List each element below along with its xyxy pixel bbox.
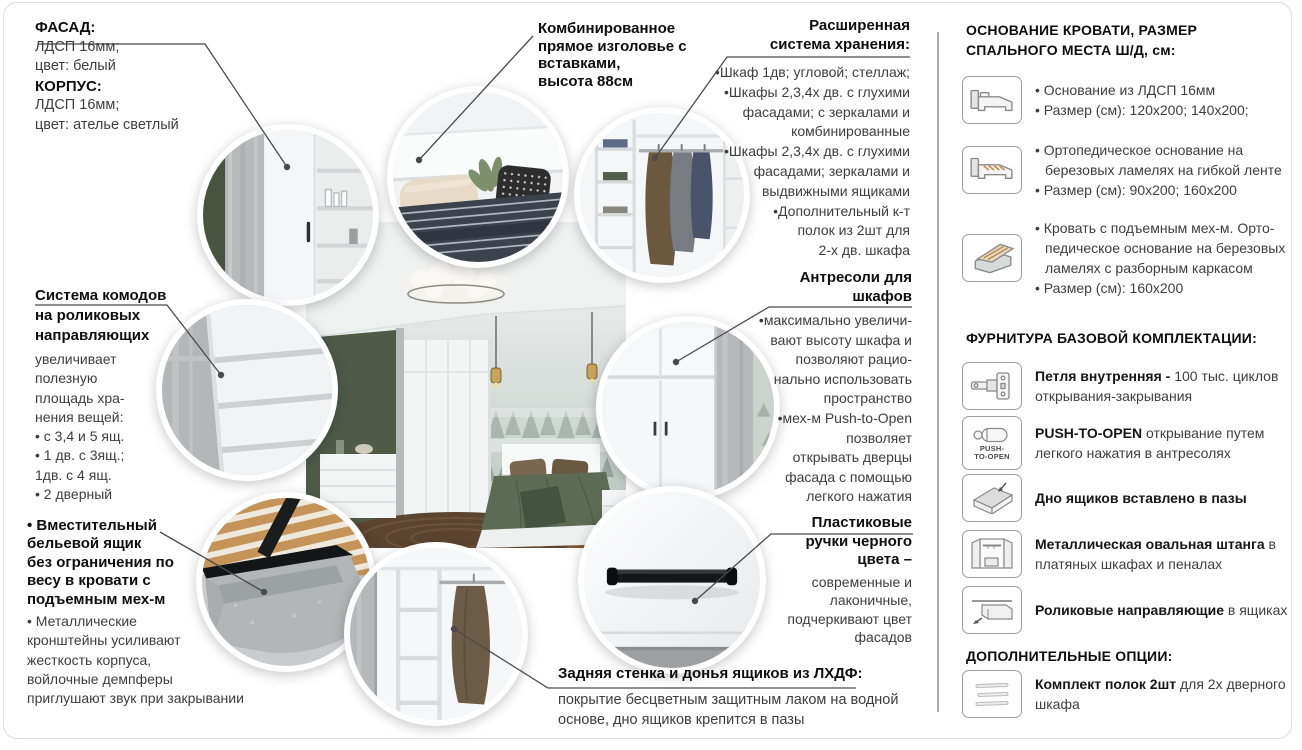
bed-item-ortho: • Ортопедическое основание на березовых … — [962, 140, 1291, 200]
hinge-icon — [970, 369, 1014, 403]
infographic-page: ФАСАД: ЛДСП 16мм; цвет: белый КОРПУС: ЛД… — [0, 0, 1302, 750]
callout-drawer-system: Система комодовна роликовыхнаправляющих … — [35, 286, 205, 504]
body-line: цвет: ателье светлый — [35, 116, 225, 136]
callout-mezzanine: Антресоли дляшкафов •максимально увеличи… — [640, 268, 912, 507]
linen-box-text: • Металлическиекронштейны усиливаютжестк… — [27, 612, 287, 708]
hardware-item-push: PUSH-TO-OPEN PUSH-TO-OPEN открывание пут… — [962, 416, 1291, 470]
bed-base-text: • Основание из ЛДСП 16мм • Размер (см): … — [1035, 80, 1291, 120]
shelf-kit-icon-box — [962, 670, 1022, 718]
back-wall-title: Задняя стенка и донья ящиков из ЛХДФ: — [558, 665, 928, 683]
facade-line: ЛДСП 16мм; — [35, 38, 225, 58]
bed-section-title: ОСНОВАНИЕ КРОВАТИ, РАЗМЕРСПАЛЬНОГО МЕСТА… — [966, 20, 1276, 60]
hinge-icon-box — [962, 362, 1022, 410]
callout-photo-headboard — [387, 86, 569, 268]
bed-base-icon-box — [962, 76, 1022, 124]
shelf-kit-text: Комплект полок 2шт для 2х дверного шкафа — [1035, 674, 1291, 714]
drawer-system-title: Система комодовна роликовыхнаправляющих — [35, 286, 205, 346]
callout-linen-box: • Вместительныйбельевой ящикбез ограниче… — [27, 517, 287, 709]
hardware-item-rollers: Роликовые направляющие в ящиках — [962, 586, 1291, 634]
bed-ortho-icon — [969, 154, 1015, 186]
storage-title: Расширеннаясистема хранения: — [620, 16, 910, 54]
callout-handles: Пластиковыеручки черногоцвета – современ… — [650, 514, 912, 647]
body-line: ЛДСП 16мм; — [35, 96, 225, 116]
callout-back-wall: Задняя стенка и донья ящиков из ЛХДФ: по… — [558, 665, 928, 730]
push-to-open-icon — [972, 425, 1012, 445]
linen-box-title: • Вместительныйбельевой ящикбез ограниче… — [27, 517, 287, 609]
wardrobe-rod-text: Металлическая овальная штанга в платяных… — [1035, 534, 1291, 574]
bed-lift-text: • Кровать с подъемным мех-м. Орто-педиче… — [1035, 218, 1291, 298]
bed-item-base: • Основание из ЛДСП 16мм • Размер (см): … — [962, 76, 1291, 124]
push-to-open-text: PUSH-TO-OPEN открывание путем легкого на… — [1035, 423, 1291, 463]
body-title: КОРПУС: — [35, 77, 225, 97]
bed-item-lift: • Кровать с подъемным мех-м. Орто-педиче… — [962, 218, 1291, 298]
mezzanine-list: •максимально увеличи-вают высоту шкафа и… — [640, 311, 912, 507]
mezzanine-title: Антресоли дляшкафов — [640, 268, 912, 306]
bed-lift-icon-box — [962, 234, 1022, 282]
back-wall-text: покрытие бесцветным защитным лаком на во… — [558, 691, 928, 730]
bed-ortho-icon-box — [962, 146, 1022, 194]
drawer-bottom-icon-box — [962, 474, 1022, 522]
callout-photo-wardrobe-facade — [197, 124, 379, 306]
facade-title: ФАСАД: — [35, 18, 225, 38]
options-item-shelves: Комплект полок 2шт для 2х дверного шкафа — [962, 670, 1291, 718]
wardrobe-rod-icon — [970, 537, 1014, 571]
storage-list: •Шкаф 1дв; угловой; стеллаж;•Шкафы 2,3,4… — [620, 63, 910, 261]
handles-text: современные илаконичные,подчеркивают цве… — [650, 573, 912, 647]
facade-line: цвет: белый — [35, 57, 225, 77]
handles-title: Пластиковыеручки черногоцвета – — [650, 514, 912, 570]
roller-guides-icon — [970, 595, 1014, 625]
drawer-system-list: увеличиваетполезнуюплощадь хра-нения вещ… — [35, 350, 205, 504]
hinge-text: Петля внутренняя - 100 тыс. циклов откры… — [1035, 366, 1291, 406]
wardrobe-rod-icon-box — [962, 530, 1022, 578]
hardware-item-hinge: Петля внутренняя - 100 тыс. циклов откры… — [962, 362, 1291, 410]
roller-guides-text: Роликовые направляющие в ящиках — [1035, 600, 1291, 620]
bed-lift-icon — [969, 241, 1015, 275]
push-to-open-caption: PUSH-TO-OPEN — [974, 445, 1009, 461]
callout-facade: ФАСАД: ЛДСП 16мм; цвет: белый КОРПУС: ЛД… — [35, 18, 225, 135]
hardware-section-title: ФУРНИТУРА БАЗОВОЙ КОМПЛЕКТАЦИИ: — [966, 328, 1276, 348]
hardware-item-drawer-bottom: Дно ящиков вставлено в пазы — [962, 474, 1291, 522]
hardware-item-rod: Металлическая овальная штанга в платяных… — [962, 530, 1291, 578]
drawer-bottom-text: Дно ящиков вставлено в пазы — [1035, 488, 1291, 508]
callout-storage: Расширеннаясистема хранения: •Шкаф 1дв; … — [620, 16, 910, 261]
shelf-kit-icon — [970, 677, 1014, 711]
push-to-open-icon-box: PUSH-TO-OPEN — [962, 416, 1022, 470]
roller-guides-icon-box — [962, 586, 1022, 634]
drawer-bottom-icon — [970, 482, 1014, 514]
options-section-title: ДОПОЛНИТЕЛЬНЫЕ ОПЦИИ: — [966, 646, 1276, 666]
bed-base-icon — [969, 84, 1015, 116]
bed-ortho-text: • Ортопедическое основание на березовых … — [1035, 140, 1291, 200]
callout-photo-wardrobe-interior — [344, 542, 528, 726]
